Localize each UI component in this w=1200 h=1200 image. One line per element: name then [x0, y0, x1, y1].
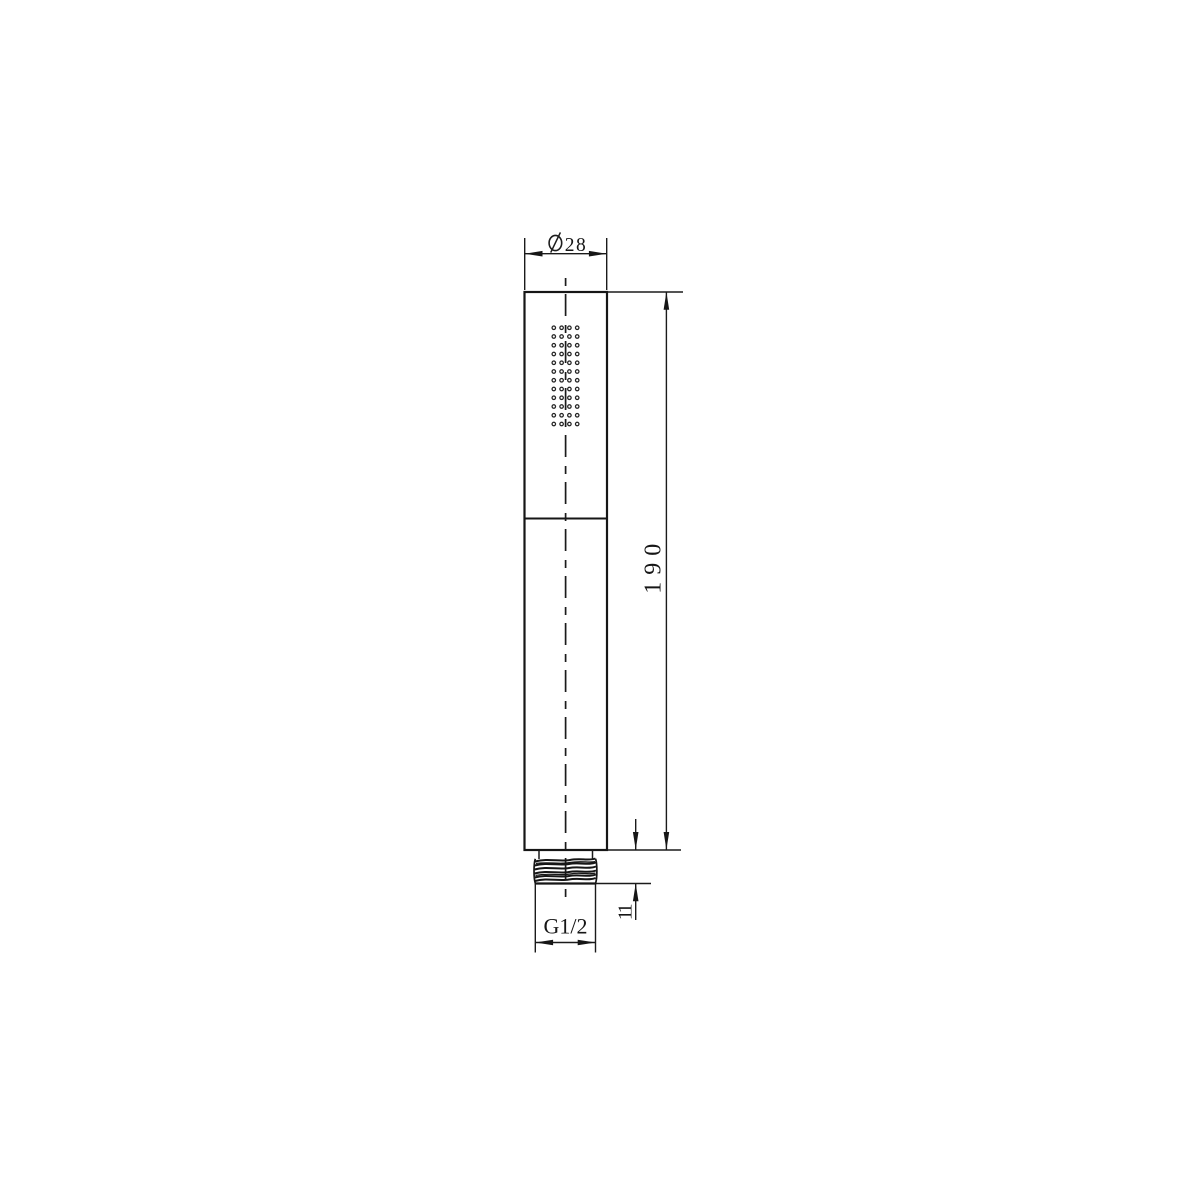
svg-text:11: 11: [615, 904, 637, 920]
svg-text:28: 28: [565, 235, 588, 256]
svg-text:190: 190: [641, 537, 667, 594]
svg-text:G1/2: G1/2: [544, 914, 588, 939]
